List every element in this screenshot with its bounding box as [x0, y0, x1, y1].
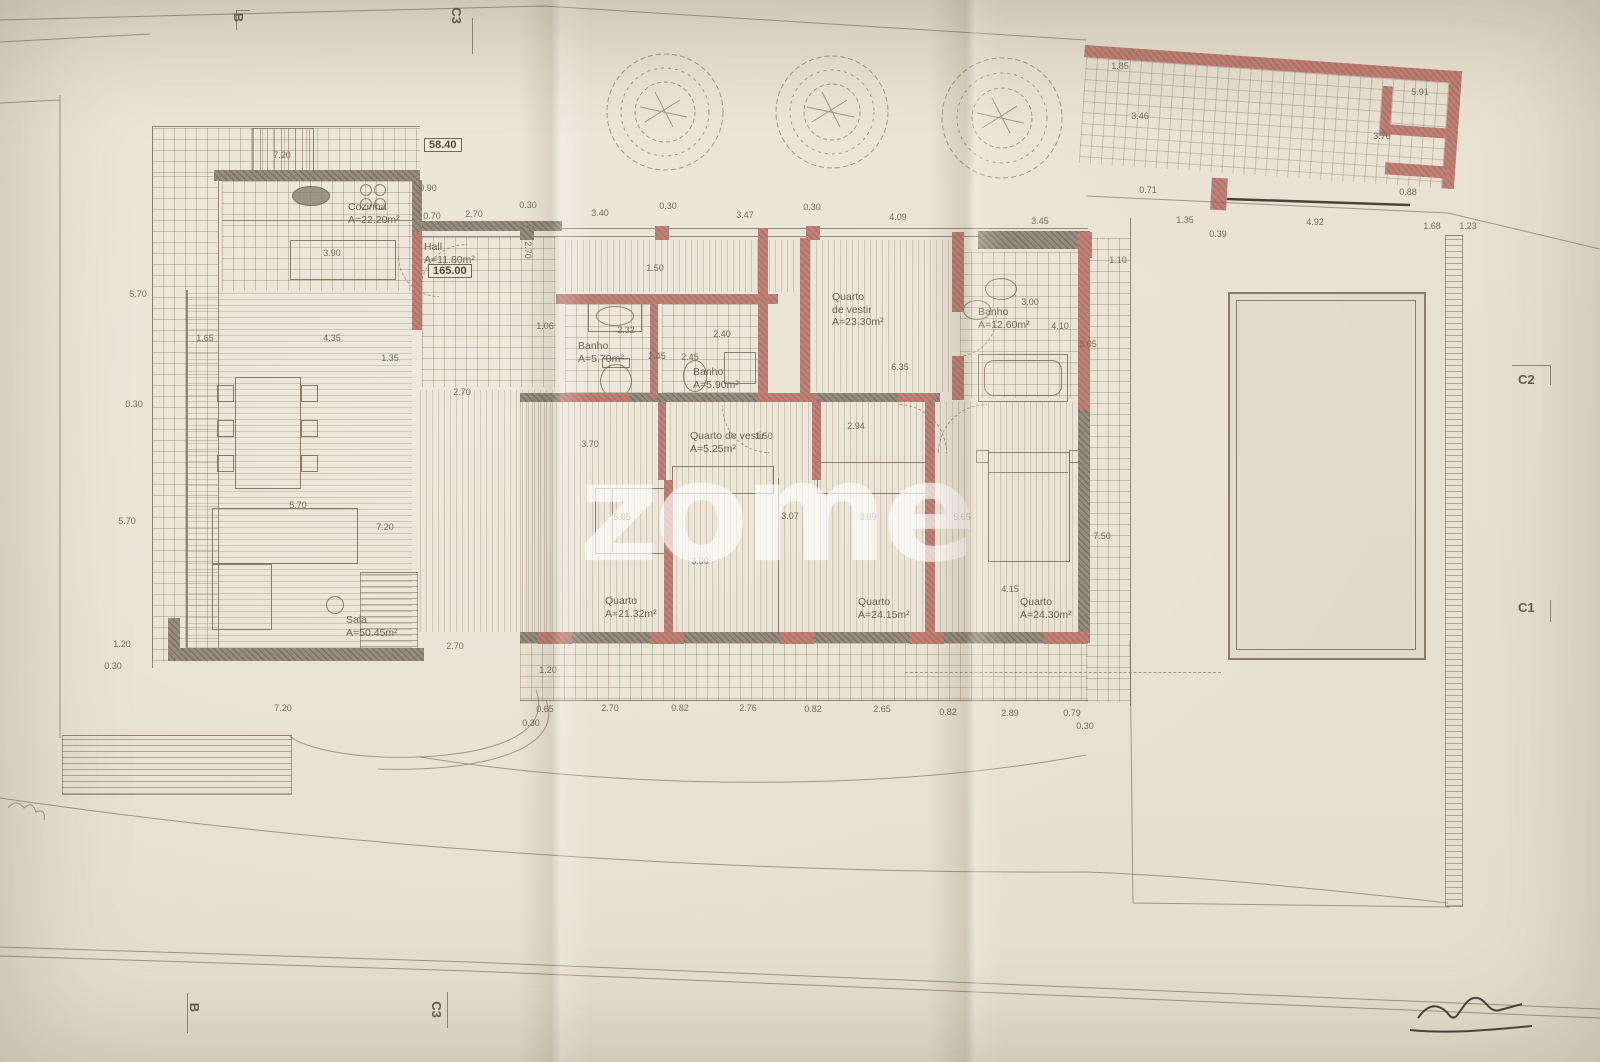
- room-label-quarto-1: QuartoA=21.32m²: [605, 595, 657, 620]
- dimension-label: 1.20: [113, 639, 131, 649]
- boxed-area-value: 165.00: [428, 264, 472, 278]
- dimension-label: 2.45: [648, 351, 666, 361]
- dimension-label: 1.10: [1109, 255, 1127, 265]
- dimension-label: 1.06: [536, 321, 554, 331]
- dimension-label: 1.50: [646, 263, 664, 273]
- dimension-label: 2.65: [873, 704, 891, 714]
- floor-plan-photo: B C3 B C3 C2 C1 CozinhaA=22.20m²HallA=11…: [0, 0, 1600, 1062]
- dimension-label: 5.70: [118, 516, 136, 526]
- dimension-label: 2.70: [446, 641, 464, 651]
- dimension-label: 4.35: [323, 333, 341, 343]
- room-label-banho-2: BanhoA=5.90m²: [693, 366, 739, 391]
- dimension-label: 3.47: [736, 210, 754, 220]
- dimension-label: 5.70: [289, 500, 307, 510]
- dimension-label: 1.68: [1423, 221, 1441, 231]
- dimension-label: 2.70: [465, 209, 483, 219]
- dimension-label: 4.15: [1001, 584, 1019, 594]
- dimension-label: 0.82: [804, 704, 822, 714]
- room-label-hall: HallA=11.80m²: [424, 241, 475, 266]
- dimension-label: 1.85: [1111, 61, 1129, 71]
- dimension-label: 0.30: [125, 399, 143, 409]
- dimension-label: 6.35: [891, 362, 909, 372]
- room-label-banho-1: BanhoA=5.70m²: [578, 340, 624, 365]
- dimension-label: 2.76: [739, 703, 757, 713]
- dimension-label: 0.90: [419, 183, 437, 193]
- dimension-label: 3.00: [1021, 297, 1039, 307]
- dimension-label: 0.39: [1209, 229, 1227, 239]
- dimension-label: 2.89: [1001, 708, 1019, 718]
- section-marker-top-right: C3: [449, 7, 464, 24]
- dimension-label: 0.82: [671, 703, 689, 713]
- dimension-label: 7.20: [274, 703, 292, 713]
- dimension-label: 4.09: [889, 212, 907, 222]
- dimension-label: 2.40: [713, 329, 731, 339]
- room-label-sala: SalaA=50.45m²: [346, 614, 398, 639]
- dimension-label: 1.23: [1459, 221, 1477, 231]
- dimension-label: 0.82: [939, 707, 957, 717]
- room-label-cozinha: CozinhaA=22.20m²: [348, 201, 400, 226]
- section-marker-c2: C2: [1518, 372, 1535, 387]
- watermark: zome: [565, 432, 985, 593]
- dimension-label: 4.10: [1051, 321, 1069, 331]
- dimension-label: 2.45: [681, 352, 699, 362]
- dimension-label: 2.70: [523, 241, 533, 259]
- dimension-label: 3.46: [1131, 111, 1149, 121]
- room-label-quarto-3: QuartoA=24.30m²: [1020, 596, 1072, 621]
- dimension-label: 3.45: [1031, 216, 1049, 226]
- room-label-quarto-2: QuartoA=24.15m²: [858, 596, 910, 621]
- dimension-label: 1.35: [1176, 215, 1194, 225]
- dimension-label: 0.30: [519, 200, 537, 210]
- room-label-quarto-vestir-1: Quartode vestirA=23.30m²: [832, 291, 884, 329]
- dimension-label: 3.90: [323, 248, 341, 258]
- dimension-label: 2.32: [617, 325, 635, 335]
- room-label-banho-3: BanhoA=12.60m²: [978, 306, 1030, 331]
- dimension-label: 7.20: [273, 150, 291, 160]
- section-marker-c1: C1: [1518, 600, 1535, 615]
- dimension-label: 0.30: [659, 201, 677, 211]
- dimension-label: 7.20: [376, 522, 394, 532]
- dimension-label: 4.92: [1306, 217, 1324, 227]
- dimension-label: 2.70: [601, 703, 619, 713]
- dimension-label: 0.71: [1139, 185, 1157, 195]
- dimension-label: 1.65: [196, 333, 214, 343]
- dimension-label: 0.70: [423, 211, 441, 221]
- dimension-label: 0.88: [1399, 187, 1417, 197]
- dimension-label: 3.05: [1079, 339, 1097, 349]
- dimension-label: 5.70: [129, 289, 147, 299]
- dimension-label: 1.35: [381, 353, 399, 363]
- dimension-label: 0.65: [536, 704, 554, 714]
- dimension-label: 7.50: [1093, 531, 1111, 541]
- dimension-label: 2.94: [847, 421, 865, 431]
- section-marker-bottom-left: B: [187, 1003, 202, 1012]
- dimension-label: 1.20: [539, 665, 557, 675]
- dimension-label: 3.40: [591, 208, 609, 218]
- dimension-label: 0.30: [803, 202, 821, 212]
- dimension-label: 3.70: [1373, 131, 1391, 141]
- dimension-label: 0.30: [522, 718, 540, 728]
- dimension-label: 0.30: [1076, 721, 1094, 731]
- boxed-area-value: 58.40: [424, 138, 462, 152]
- dimension-label: 0.79: [1063, 708, 1081, 718]
- section-marker-top-left: B: [231, 13, 246, 22]
- dimension-label: 2.70: [453, 387, 471, 397]
- section-marker-bottom-right: C3: [429, 1001, 444, 1018]
- dimension-label: 0.30: [104, 661, 122, 671]
- dimension-label: 5.91: [1411, 87, 1429, 97]
